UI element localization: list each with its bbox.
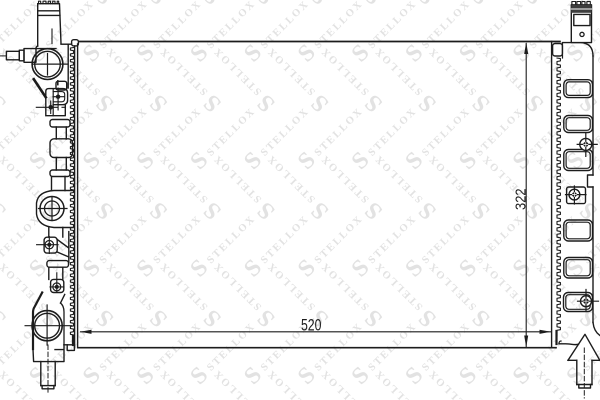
svg-text:322: 322 xyxy=(514,188,530,210)
svg-text:520: 520 xyxy=(301,317,322,335)
